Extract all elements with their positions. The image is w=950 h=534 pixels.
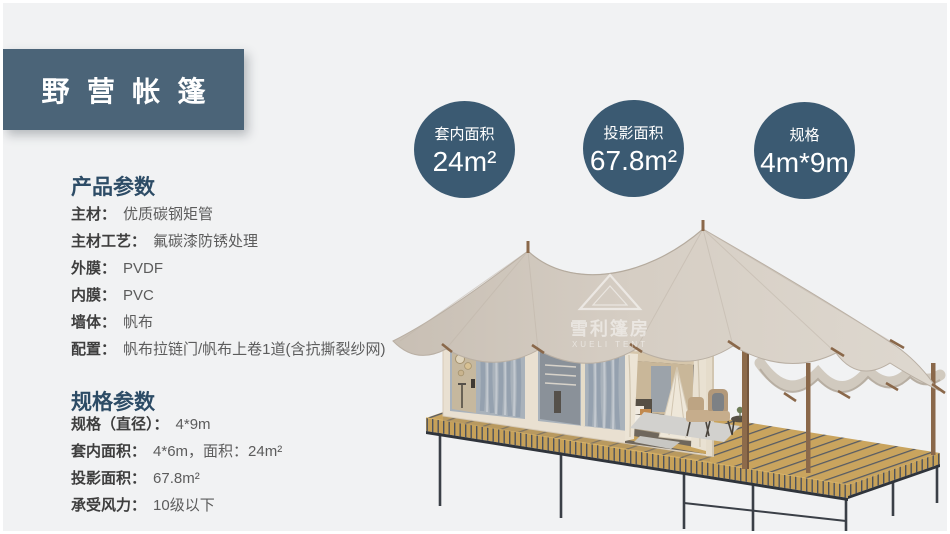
param-label: 主材工艺： (71, 233, 146, 250)
list-item: 承受风力：10级以下 (71, 498, 282, 514)
stat-label: 规格 (789, 124, 819, 145)
param-value: 帆布 (123, 314, 153, 331)
param-label: 套内面积： (71, 443, 146, 460)
param-value: 优质碳钢矩管 (123, 206, 213, 223)
param-value: 67.8m² (153, 470, 200, 487)
product-params-list: 主材：优质碳钢矩管 主材工艺：氟碳漆防锈处理 外膜：PVDF 内膜：PVC 墙体… (71, 207, 386, 369)
param-label: 规格（直径）： (71, 416, 169, 433)
watermark-en: XUELI TENT (572, 340, 648, 349)
section-heading-spec-params: 规格参数 (71, 386, 155, 416)
stat-value: 4m*9m (760, 149, 849, 177)
section-heading-product-params: 产品参数 (71, 171, 155, 201)
param-label: 配置： (71, 341, 116, 358)
list-item: 投影面积：67.8m² (71, 471, 282, 487)
list-item: 墙体：帆布 (71, 315, 386, 331)
tent-product-image: 雪利篷房 XUELI TENT (388, 213, 948, 533)
list-item: 配置：帆布拉链门/帆布上卷1道(含抗撕裂纱网) (71, 342, 386, 358)
param-value: 帆布拉链门/帆布上卷1道(含抗撕裂纱网) (123, 341, 386, 358)
stat-label: 投影面积 (603, 122, 663, 143)
list-item: 规格（直径）：4*9m (71, 417, 282, 433)
list-item: 套内面积：4*6m，面积：24m² (71, 444, 282, 460)
param-label: 外膜： (71, 260, 116, 277)
page-title: 野营帐篷 (24, 70, 223, 110)
param-label: 投影面积： (71, 470, 146, 487)
param-label: 主材： (71, 206, 116, 223)
stat-circle-size: 规格 4m*9m (754, 102, 855, 199)
list-item: 主材工艺：氟碳漆防锈处理 (71, 234, 386, 250)
stat-circle-inner-area: 套内面积 24m² (414, 101, 515, 198)
page: 野营帐篷 套内面积 24m² 投影面积 67.8m² 规格 4m*9m 产品参数… (0, 0, 950, 534)
param-label: 墙体： (71, 314, 116, 331)
param-label: 内膜： (71, 287, 116, 304)
watermark-cn: 雪利篷房 (570, 318, 650, 339)
stat-circle-projection-area: 投影面积 67.8m² (583, 100, 684, 197)
list-item: 主材：优质碳钢矩管 (71, 207, 386, 223)
page-title-panel: 野营帐篷 (3, 49, 244, 130)
param-value: 10级以下 (153, 497, 215, 514)
param-label: 承受风力： (71, 497, 146, 514)
stat-value: 24m² (433, 148, 497, 176)
list-item: 内膜：PVC (71, 288, 386, 304)
param-value: 4*6m，面积：24m² (153, 443, 282, 460)
spec-params-list: 规格（直径）：4*9m 套内面积：4*6m，面积：24m² 投影面积：67.8m… (71, 417, 282, 525)
param-value: PVC (123, 287, 154, 304)
stat-value: 67.8m² (590, 147, 677, 175)
param-value: 氟碳漆防锈处理 (153, 233, 258, 250)
param-value: PVDF (123, 260, 163, 277)
list-item: 外膜：PVDF (71, 261, 386, 277)
param-value: 4*9m (176, 416, 211, 433)
stat-label: 套内面积 (434, 123, 494, 144)
